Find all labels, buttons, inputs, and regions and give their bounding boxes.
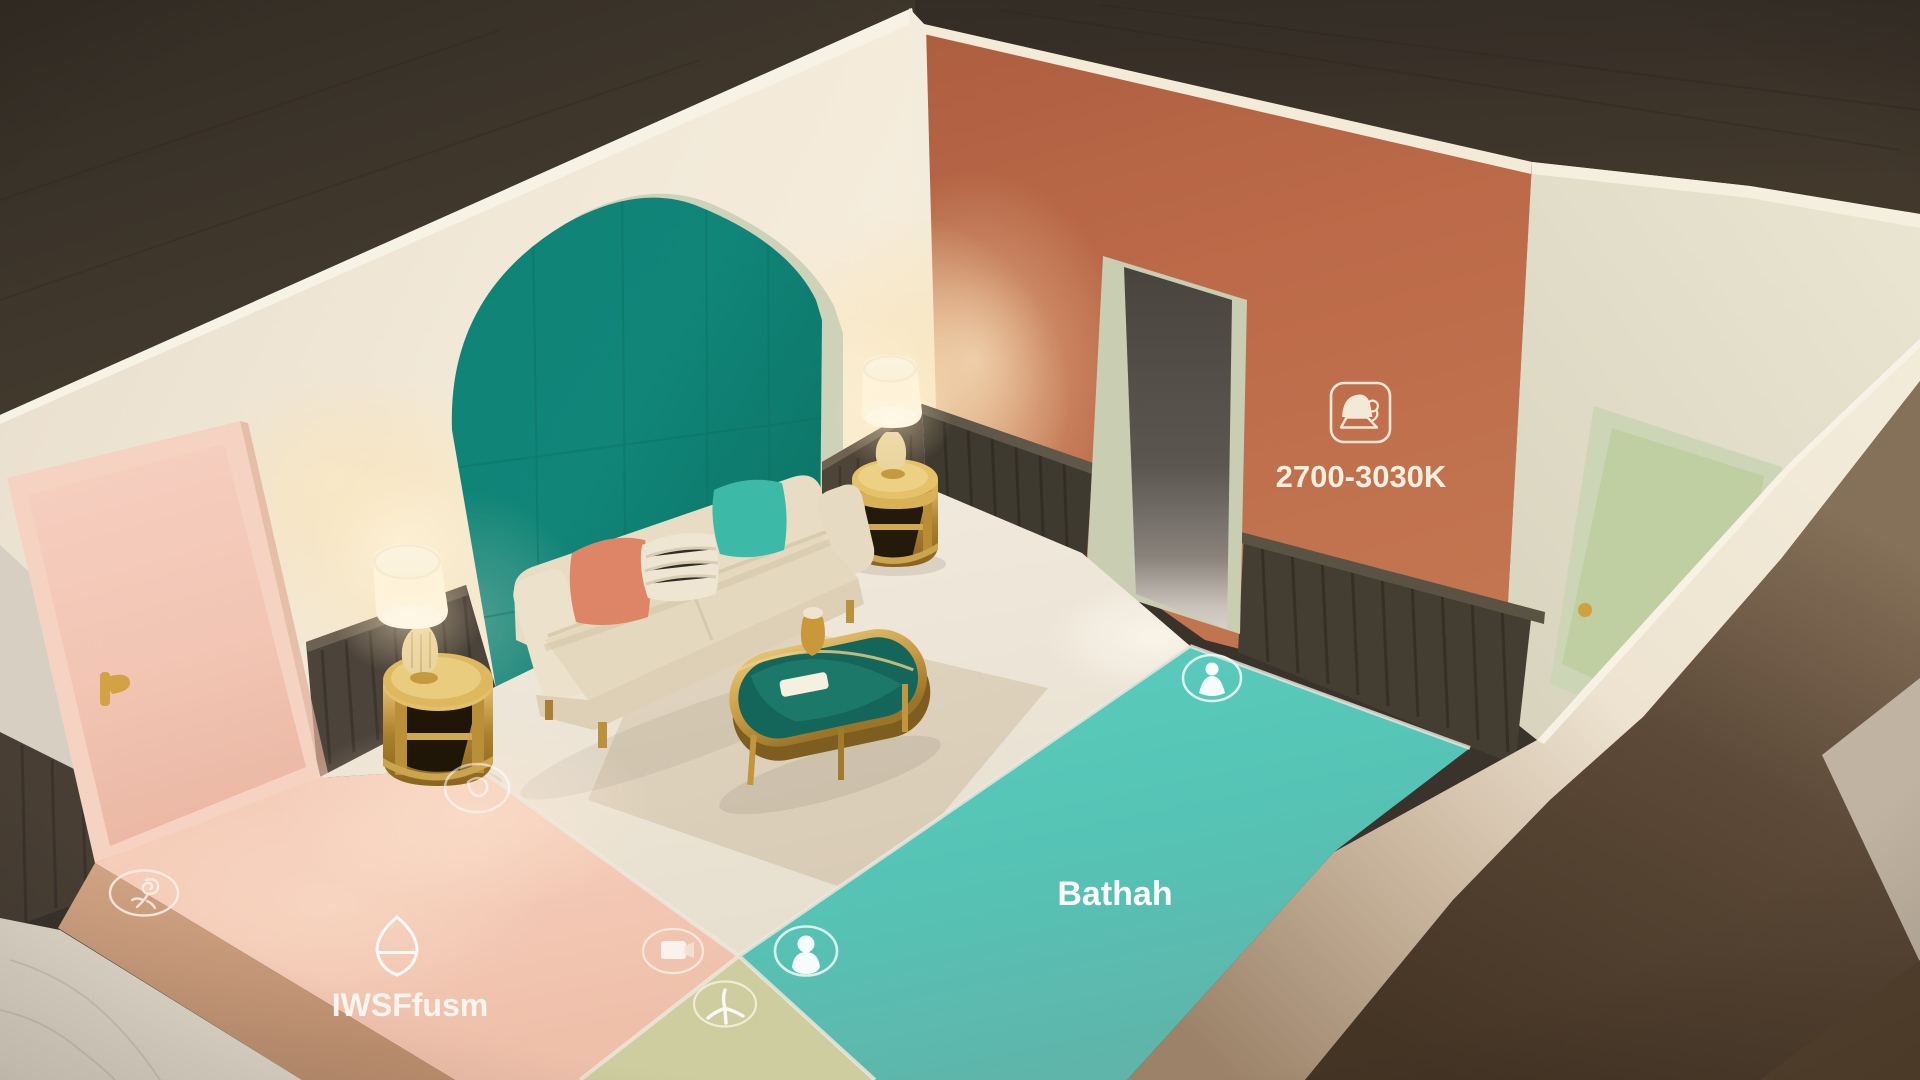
svg-text:IWSFfusm: IWSFfusm (332, 987, 488, 1023)
svg-text:2700-3030K: 2700-3030K (1276, 459, 1447, 494)
svg-text:Bathah: Bathah (1057, 875, 1172, 913)
